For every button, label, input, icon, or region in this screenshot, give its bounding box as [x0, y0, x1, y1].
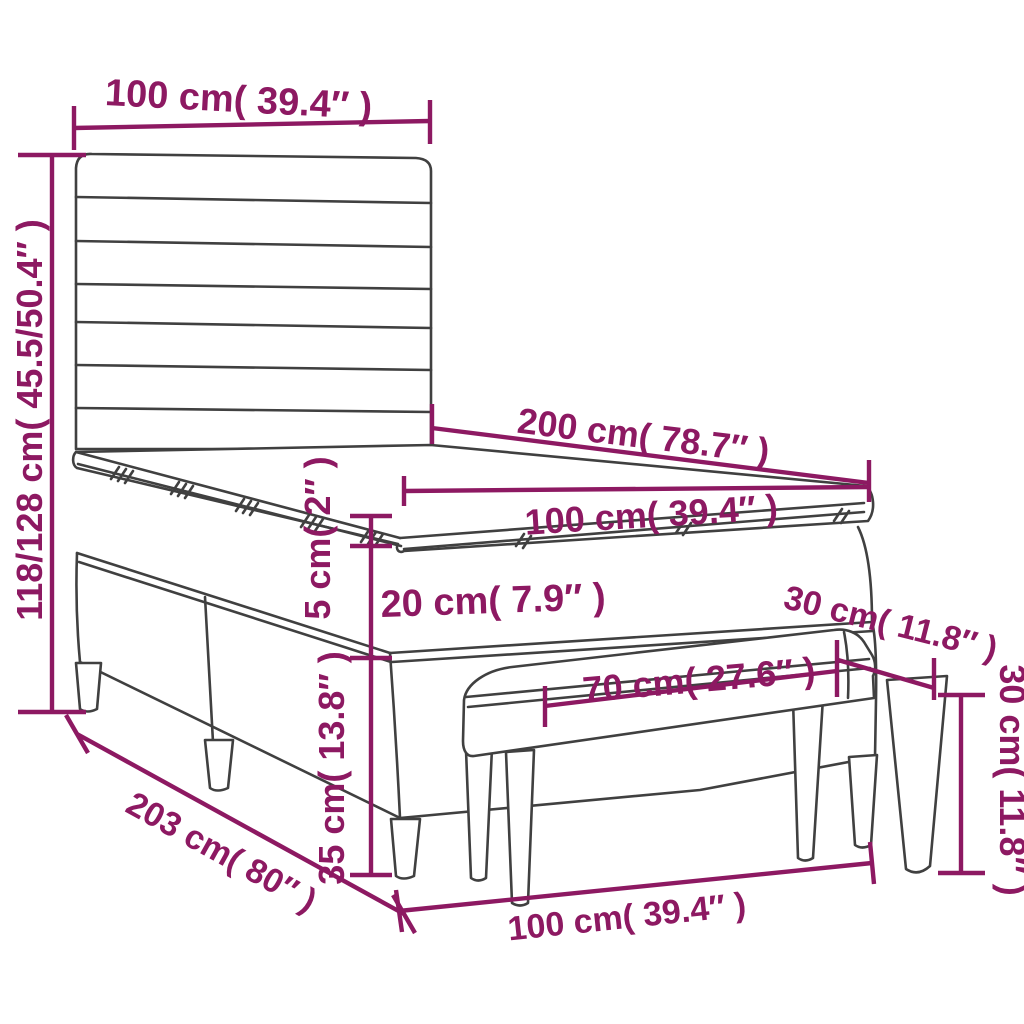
dim-bed-leg-height-label: 35 cm( 13.8″ ): [311, 651, 352, 884]
bed-leg: [205, 740, 233, 791]
bed-leg: [849, 755, 877, 848]
dim-headboard-width-label: 100 cm( 39.4″ ): [104, 72, 373, 128]
bench-leg: [466, 748, 492, 881]
bed-leg: [391, 819, 420, 879]
dim-bed-height-label: 118/128 cm( 45.5/50.4″ ): [9, 219, 50, 621]
dim-headboard-width: 100 cm( 39.4″ ): [74, 72, 430, 150]
bed-leg: [76, 663, 101, 712]
headboard: [76, 154, 431, 449]
bench-leg: [887, 676, 947, 872]
dim-boxspring-thickness-label: 20 cm( 7.9″ ): [380, 576, 607, 626]
dim-topper-thickness-label: 5 cm( 2″ ): [297, 456, 338, 619]
diagram-canvas: 100 cm( 39.4″ ) 118/128 cm( 45.5/50.4″ )…: [0, 0, 1024, 1024]
dim-bench-height: 30 cm( 11.8″ ): [938, 664, 1024, 895]
furniture-dimension-diagram: 100 cm( 39.4″ ) 118/128 cm( 45.5/50.4″ )…: [0, 0, 1024, 1024]
bench-leg: [793, 698, 823, 861]
dim-bench-height-label: 30 cm( 11.8″ ): [992, 664, 1024, 895]
dim-bed-height: 118/128 cm( 45.5/50.4″ ): [9, 155, 86, 712]
bench-leg: [506, 750, 534, 906]
